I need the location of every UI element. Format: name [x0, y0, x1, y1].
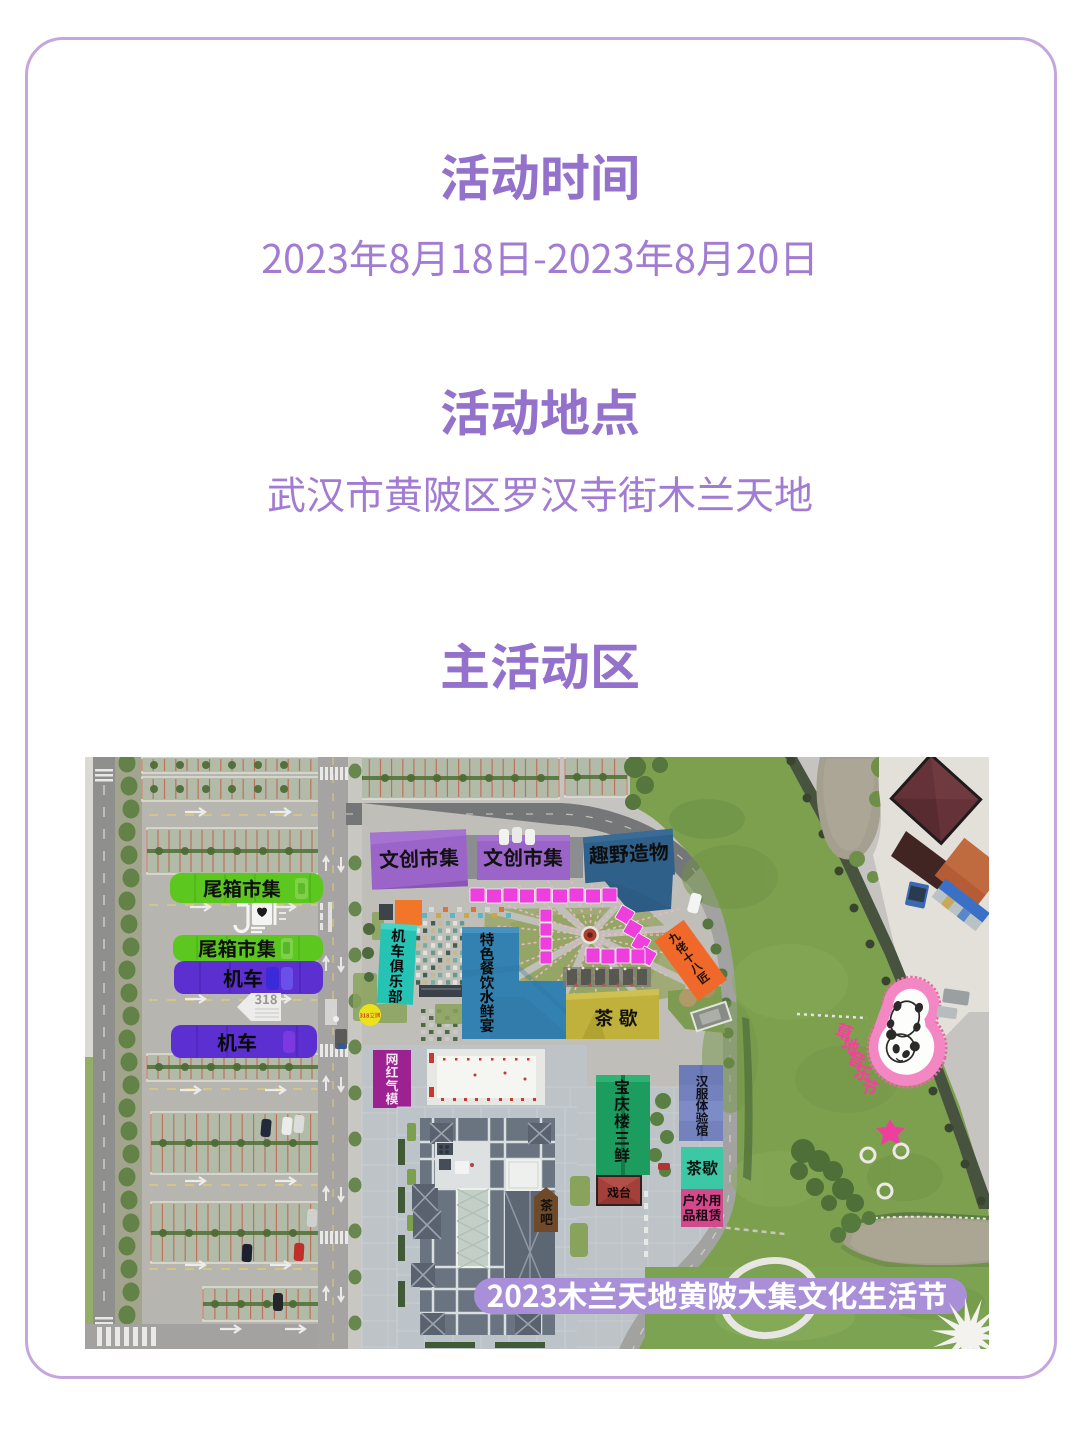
svg-text:文创市集: 文创市集: [378, 842, 459, 874]
svg-text:趣野造物: 趣野造物: [588, 836, 669, 869]
svg-text:宝庆楼三鲜: 宝庆楼三鲜: [614, 1074, 630, 1166]
svg-text:文创市集: 文创市集: [483, 842, 563, 871]
svg-text:尾箱市集: 尾箱市集: [203, 873, 282, 902]
svg-text:318: 318: [254, 989, 277, 1008]
svg-text:网红气模: 网红气模: [385, 1049, 398, 1108]
svg-text:茶歇: 茶歇: [686, 1155, 718, 1179]
svg-text:茶吧: 茶吧: [540, 1195, 553, 1228]
svg-text:特色餐饮水鲜宴: 特色餐饮水鲜宴: [480, 929, 495, 1036]
svg-text:尾箱市集: 尾箱市集: [198, 933, 277, 962]
svg-text:品租赁: 品租赁: [682, 1205, 721, 1224]
svg-text:2023木兰天地黄陂大集文化生活节: 2023木兰天地黄陂大集文化生活节: [487, 1272, 948, 1316]
svg-text:318立牌: 318立牌: [360, 1012, 381, 1020]
svg-text:机车: 机车: [223, 963, 263, 992]
svg-text:茶 歇: 茶 歇: [594, 1004, 637, 1031]
svg-text:汉服体验馆: 汉服体验馆: [696, 1071, 709, 1139]
svg-text:戏台: 戏台: [607, 1184, 631, 1201]
svg-text:机车: 机车: [217, 1027, 257, 1056]
